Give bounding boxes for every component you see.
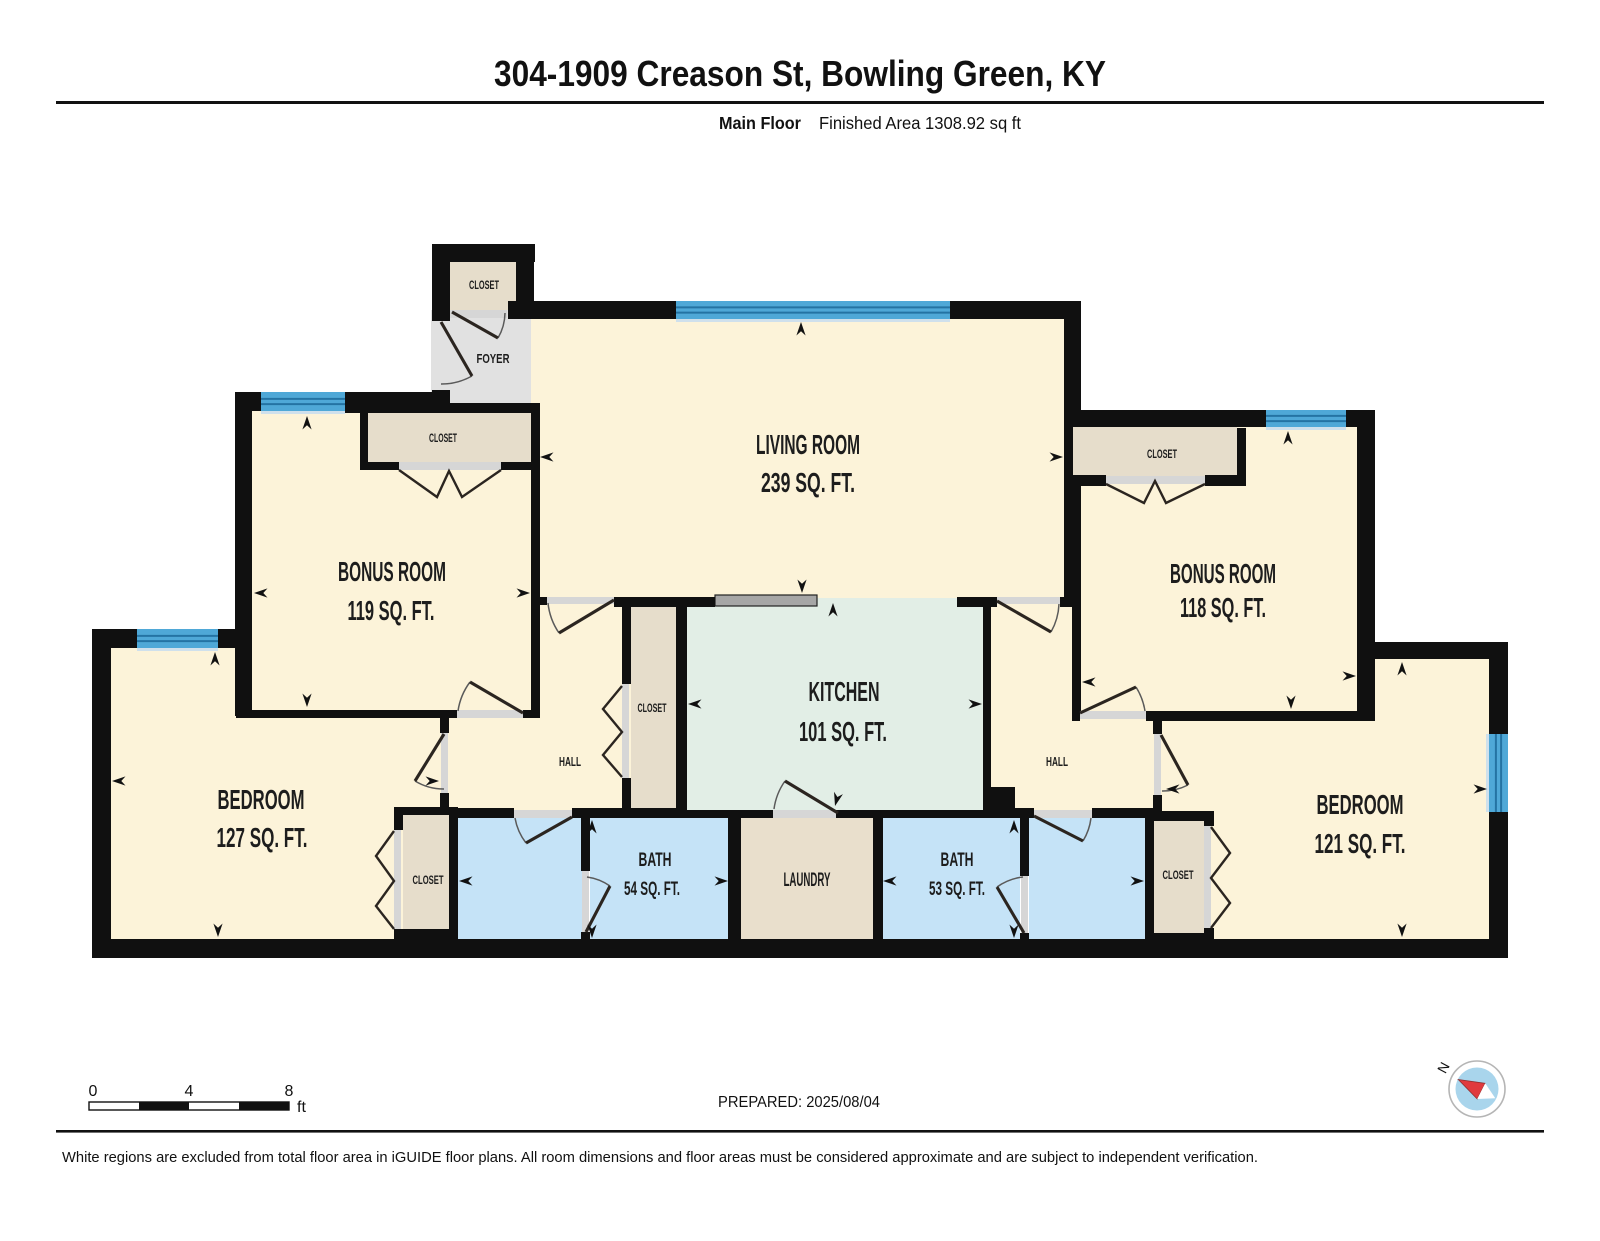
svg-text:CLOSET: CLOSET [638, 703, 667, 715]
svg-text:BEDROOM: BEDROOM [1317, 789, 1404, 820]
svg-text:127 SQ. FT.: 127 SQ. FT. [217, 822, 308, 853]
svg-text:CLOSET: CLOSET [1163, 870, 1194, 882]
svg-text:304-1909 Creason St, Bowling G: 304-1909 Creason St, Bowling Green, KY [494, 53, 1106, 94]
svg-text:LAUNDRY: LAUNDRY [784, 870, 831, 891]
svg-text:53 SQ. FT.: 53 SQ. FT. [929, 879, 985, 900]
svg-text:CLOSET: CLOSET [469, 280, 499, 292]
svg-text:4: 4 [185, 1083, 194, 1100]
svg-text:BATH: BATH [941, 850, 974, 871]
svg-text:54 SQ. FT.: 54 SQ. FT. [624, 879, 680, 900]
svg-text:CLOSET: CLOSET [413, 875, 444, 887]
svg-text:8: 8 [285, 1083, 294, 1100]
svg-text:239 SQ. FT.: 239 SQ. FT. [761, 467, 855, 498]
svg-text:PREPARED: 2025/08/04: PREPARED: 2025/08/04 [718, 1094, 880, 1111]
svg-text:KITCHEN: KITCHEN [809, 676, 880, 707]
svg-text:BATH: BATH [639, 850, 672, 871]
svg-text:118 SQ. FT.: 118 SQ. FT. [1180, 592, 1266, 623]
svg-text:CLOSET: CLOSET [429, 433, 457, 445]
svg-text:HALL: HALL [559, 754, 581, 769]
svg-text:121 SQ. FT.: 121 SQ. FT. [1315, 828, 1406, 859]
svg-text:Finished Area 1308.92 sq ft: Finished Area 1308.92 sq ft [819, 113, 1021, 133]
svg-text:FOYER: FOYER [477, 351, 510, 366]
svg-text:Main Floor: Main Floor [719, 113, 801, 133]
svg-text:White regions are excluded fro: White regions are excluded from total fl… [62, 1149, 1258, 1166]
svg-text:ft: ft [297, 1099, 306, 1116]
svg-text:119 SQ. FT.: 119 SQ. FT. [348, 595, 435, 626]
svg-text:BEDROOM: BEDROOM [218, 784, 305, 815]
svg-text:HALL: HALL [1046, 754, 1068, 769]
svg-text:0: 0 [89, 1083, 98, 1100]
svg-text:LIVING ROOM: LIVING ROOM [756, 429, 860, 460]
svg-text:BONUS ROOM: BONUS ROOM [1170, 558, 1276, 589]
svg-text:CLOSET: CLOSET [1147, 449, 1177, 461]
svg-text:101 SQ. FT.: 101 SQ. FT. [799, 716, 887, 747]
svg-text:BONUS ROOM: BONUS ROOM [338, 556, 446, 587]
